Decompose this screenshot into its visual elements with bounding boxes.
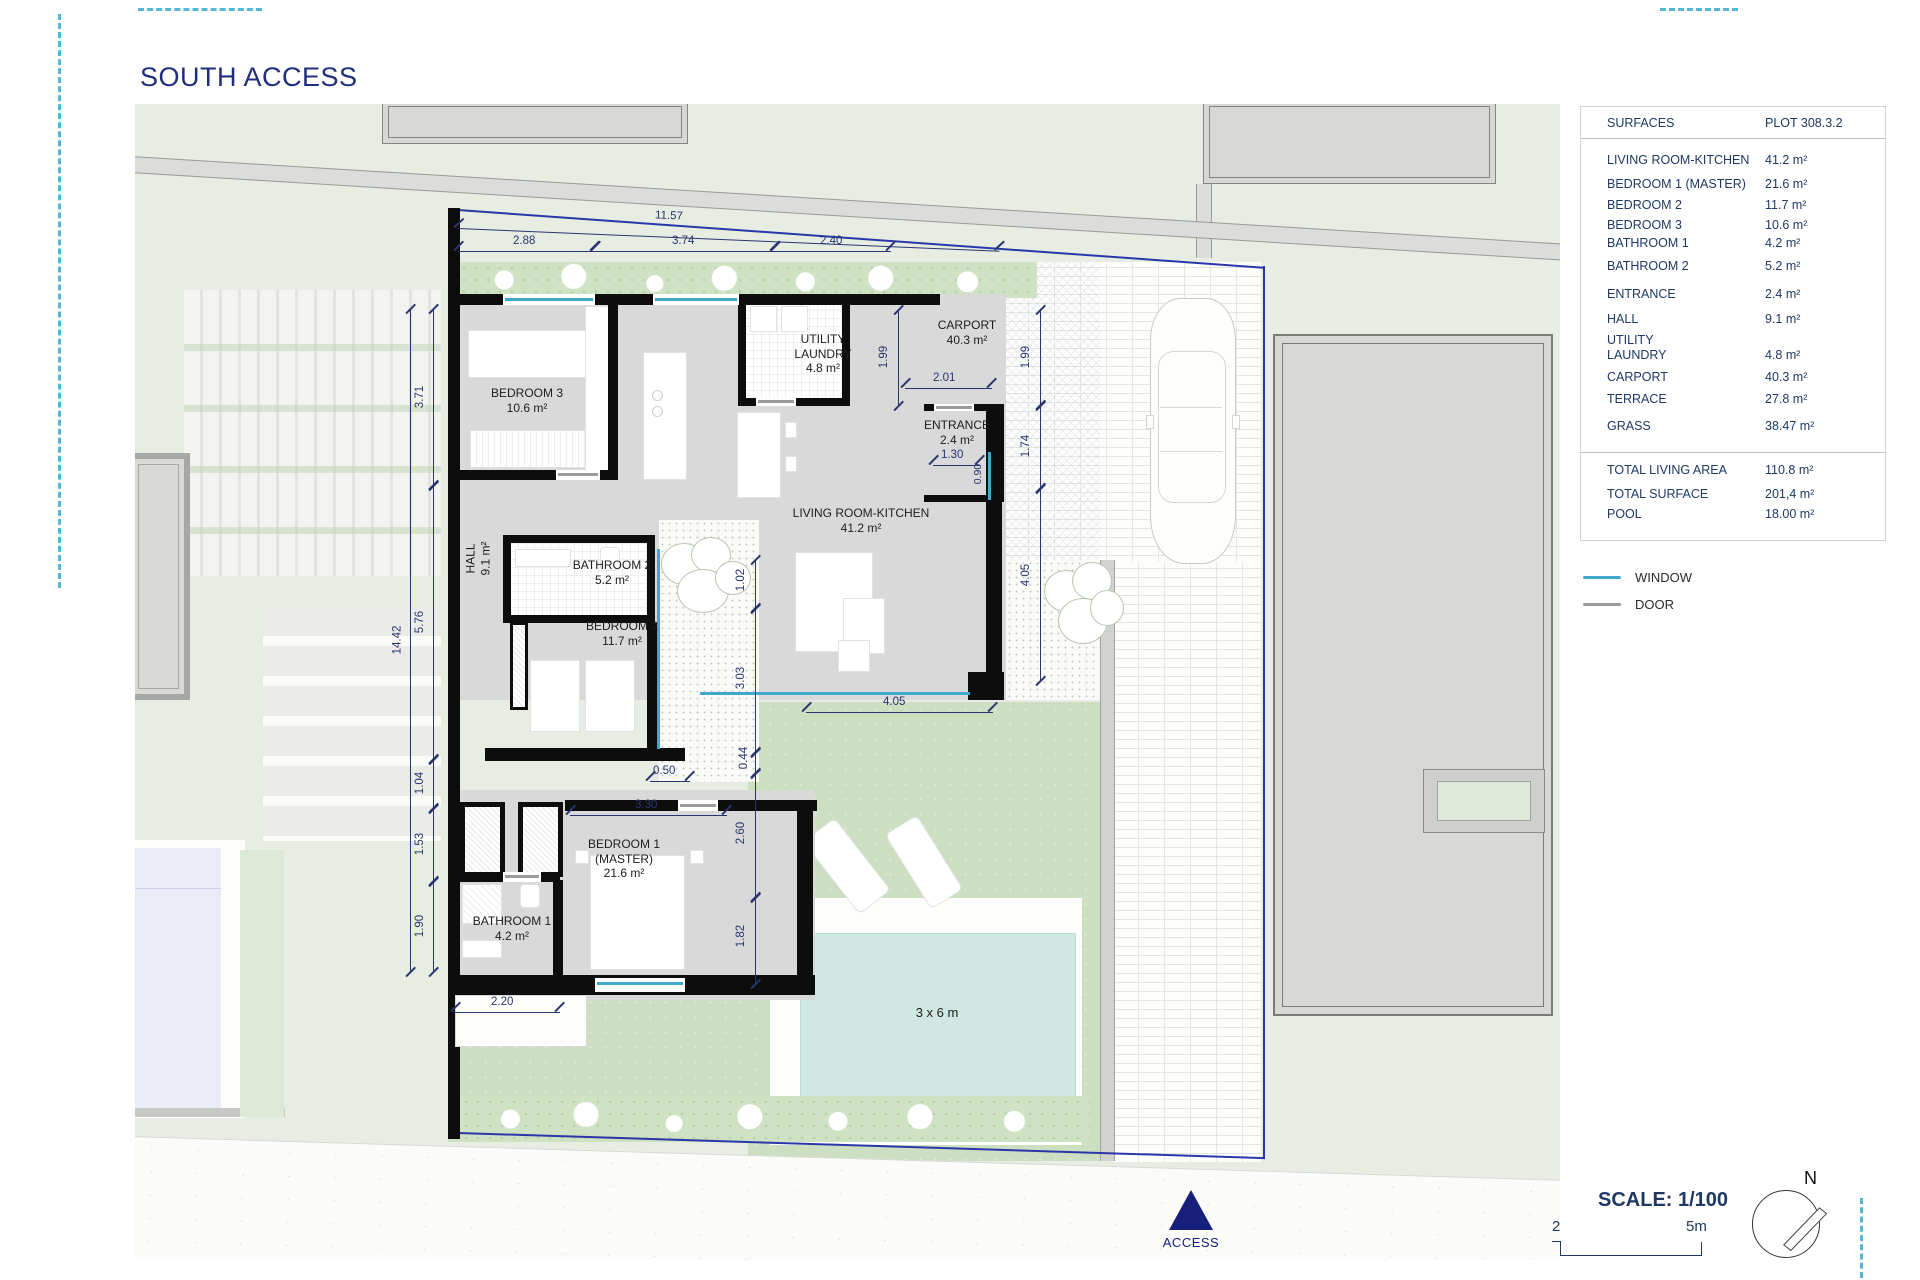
table-row: TOTAL SURFACE201,4 m² — [1581, 487, 1885, 502]
scale-right-value: 5m — [1686, 1218, 1707, 1235]
hedge-north — [458, 262, 1037, 298]
dim-label: 2.20 — [491, 996, 513, 1008]
dim-label: 14.42 — [391, 626, 403, 655]
dim-line — [433, 759, 434, 808]
dim-label: 4.05 — [883, 696, 905, 708]
neighbor-building-top-left — [382, 104, 688, 144]
plot-boundary-east — [1263, 266, 1265, 1159]
dim-line — [755, 773, 756, 897]
window-swatch-icon — [1583, 576, 1621, 580]
wall-corner-column — [968, 672, 1004, 700]
dim-label: 2.01 — [933, 372, 955, 384]
window-north-1 — [505, 298, 593, 301]
wall-living-east — [986, 404, 1002, 696]
dim-line — [755, 560, 756, 608]
wall-bedroom2-south — [485, 748, 685, 761]
table-row: TERRACE27.8 m² — [1581, 392, 1885, 407]
dim-line — [1040, 310, 1041, 405]
table-row: ENTRANCE2.4 m² — [1581, 287, 1885, 302]
dim-label: 1.90 — [414, 915, 426, 937]
room-label-bathroom1: BATHROOM 14.2 m² — [452, 914, 572, 943]
neighbor-building-top-right — [1203, 104, 1496, 184]
scale-bar — [1560, 1242, 1702, 1256]
room-label-entrance: ENTRANCE2.4 m² — [897, 418, 1017, 447]
tree-terrace — [1040, 560, 1125, 650]
dim-label: 2.60 — [735, 822, 747, 844]
dim-line — [775, 251, 891, 252]
dim-label: 1.82 — [735, 925, 747, 947]
dim-label: 5.76 — [414, 611, 426, 633]
coffee-table — [838, 640, 870, 672]
dim-line — [458, 251, 595, 252]
dim-label: 1.74 — [1020, 435, 1032, 457]
neighbor-green-strip — [240, 850, 284, 1117]
window-bedroom1-south — [597, 982, 683, 985]
door-bedroom3 — [558, 473, 598, 476]
dim-label: 0.50 — [653, 765, 675, 777]
neighbor-pool-lane-line — [135, 888, 221, 889]
plot-number: PLOT 308.3.2 — [1765, 116, 1885, 130]
twin-bed — [530, 660, 580, 732]
table-row: POOL18.00 m² — [1581, 507, 1885, 540]
room-label-utility: UTILITYLAUNDRY4.8 m² — [763, 332, 883, 376]
dim-label: 1.04 — [414, 772, 426, 794]
scale-left-value: 2 — [1552, 1218, 1560, 1235]
wardrobe — [510, 622, 528, 710]
dim-label: 3.71 — [414, 386, 426, 408]
window-living-south — [700, 692, 970, 695]
driveway-paving — [1113, 562, 1261, 1162]
compass-north-label: N — [1804, 1168, 1817, 1189]
dim-label: 1.30 — [941, 449, 963, 461]
dim-line — [1040, 405, 1041, 488]
dim-label: 2.88 — [513, 235, 535, 247]
dim-label: 1.02 — [735, 569, 747, 591]
table-row: BATHROOM 25.2 m² — [1581, 259, 1885, 274]
pool-size-label: 3 x 6 m — [857, 1006, 1017, 1021]
table-row: UTILITY LAUNDRY4.8 m² — [1581, 333, 1885, 363]
dim-line — [433, 881, 434, 971]
cooktop-burner — [652, 406, 663, 417]
compass: N — [1752, 1190, 1822, 1260]
table-row: TOTAL LIVING AREA110.8 m² — [1581, 463, 1885, 478]
dim-label: 2.40 — [820, 235, 842, 247]
door-entrance — [936, 406, 972, 409]
dining-chair — [785, 456, 797, 472]
table-row: BEDROOM 1 (MASTER)21.6 m² — [1581, 177, 1885, 192]
dim-line — [458, 228, 1000, 252]
window-opening — [595, 978, 685, 992]
kitchen-island — [643, 352, 687, 480]
page-title: SOUTH ACCESS — [140, 62, 358, 93]
dim-label: 3.03 — [735, 667, 747, 689]
frame-dash-bottom-right — [1860, 1198, 1863, 1278]
frame-dash-top-left — [138, 8, 262, 11]
bed — [468, 330, 588, 378]
surfaces-title: SURFACES — [1607, 116, 1765, 130]
table-row: GRASS38.47 m² — [1581, 419, 1885, 434]
dim-line — [570, 815, 727, 816]
dining-chair — [785, 422, 797, 438]
frame-dash-top-right — [1660, 8, 1738, 11]
access-arrow-icon — [1169, 1190, 1213, 1230]
scale-label: SCALE: 1/100 — [1598, 1189, 1728, 1212]
door-utility — [758, 400, 794, 403]
rug — [470, 430, 588, 468]
neighbor-steps — [263, 606, 441, 841]
porch-slab — [455, 995, 587, 1047]
room-label-bedroom2: BEDROOM 211.7 m² — [562, 619, 682, 648]
dim-line — [1040, 488, 1041, 680]
neighbor-building-left — [135, 453, 190, 700]
scale-bar-notch — [1552, 1241, 1561, 1242]
twin-bed — [585, 660, 635, 732]
neighbor-deck-rows — [184, 290, 441, 576]
dim-line — [595, 251, 775, 252]
wall-bedroom3-east — [608, 294, 618, 480]
window-entrance-side — [988, 452, 991, 500]
neighbor-planter — [1437, 781, 1531, 821]
dim-label: 1.53 — [414, 833, 426, 855]
table-row: BEDROOM 310.6 m² — [1581, 218, 1885, 233]
table-row: CARPORT40.3 m² — [1581, 370, 1885, 385]
dim-line — [755, 608, 756, 752]
dim-label: 1.99 — [1020, 346, 1032, 368]
wardrobe — [518, 802, 563, 877]
dim-line — [806, 712, 993, 713]
legend-door: DOOR — [1583, 597, 1674, 612]
dim-line — [410, 309, 411, 971]
room-label-bedroom1: BEDROOM 1(MASTER)21.6 m² — [564, 837, 684, 881]
room-label-hall: HALL9.1 m² — [464, 519, 493, 599]
table-row: BEDROOM 211.7 m² — [1581, 198, 1885, 213]
table-divider — [1581, 452, 1885, 453]
dim-label: 4.05 — [1020, 564, 1032, 586]
table-row: HALL9.1 m² — [1581, 312, 1885, 327]
dim-label: 0.44 — [738, 747, 750, 769]
neighbor-building-right — [1273, 334, 1553, 1016]
wardrobe — [460, 802, 505, 877]
dim-line — [898, 310, 899, 405]
dim-line — [433, 808, 434, 881]
legend-window: WINDOW — [1583, 570, 1692, 585]
dim-line — [755, 897, 756, 983]
dim-label: 3.30 — [635, 799, 657, 811]
dim-line — [433, 309, 434, 485]
cooktop-burner — [652, 390, 663, 401]
room-label-bedroom3: BEDROOM 310.6 m² — [467, 386, 587, 415]
driveway-edge-wall — [1100, 560, 1115, 1161]
legend-door-label: DOOR — [1635, 597, 1674, 612]
dim-label: 0.90 — [972, 464, 984, 484]
dim-line — [433, 485, 434, 759]
room-label-carport: CARPORT40.3 m² — [907, 318, 1027, 347]
site-plan: 3 x 6 m — [135, 104, 1560, 1260]
car — [1150, 298, 1236, 564]
floor-plan-sheet: SOUTH ACCESS 3 x 6 m — [0, 0, 1920, 1280]
table-row: LIVING ROOM-KITCHEN41.2 m² — [1581, 153, 1885, 168]
table-row: BATHROOM 14.2 m² — [1581, 236, 1885, 251]
dining-table — [737, 412, 781, 498]
wall-bedroom1-east — [797, 800, 813, 995]
door-bathroom1 — [505, 875, 539, 878]
dryer — [781, 306, 808, 332]
dim-label: 11.57 — [655, 209, 683, 222]
frame-dash-left — [58, 14, 61, 588]
toilet — [520, 884, 540, 908]
door-bedroom1 — [680, 804, 716, 807]
door-swatch-icon — [1583, 603, 1621, 607]
surfaces-table-header: SURFACES PLOT 308.3.2 — [1581, 107, 1885, 139]
dim-label: 3.74 — [672, 235, 694, 247]
dim-line — [650, 781, 690, 782]
window-north-2 — [655, 298, 737, 301]
access-label: ACCESS — [1131, 1236, 1251, 1251]
dim-line — [905, 388, 992, 389]
room-label-bathroom2: BATHROOM 25.2 m² — [552, 558, 672, 587]
nightstand — [690, 850, 704, 864]
washer — [750, 306, 777, 332]
surfaces-table: SURFACES PLOT 308.3.2 LIVING ROOM-KITCHE… — [1580, 106, 1886, 541]
legend-window-label: WINDOW — [1635, 570, 1692, 585]
room-label-living: LIVING ROOM-KITCHEN41.2 m² — [781, 506, 941, 535]
dim-line — [455, 1012, 560, 1013]
